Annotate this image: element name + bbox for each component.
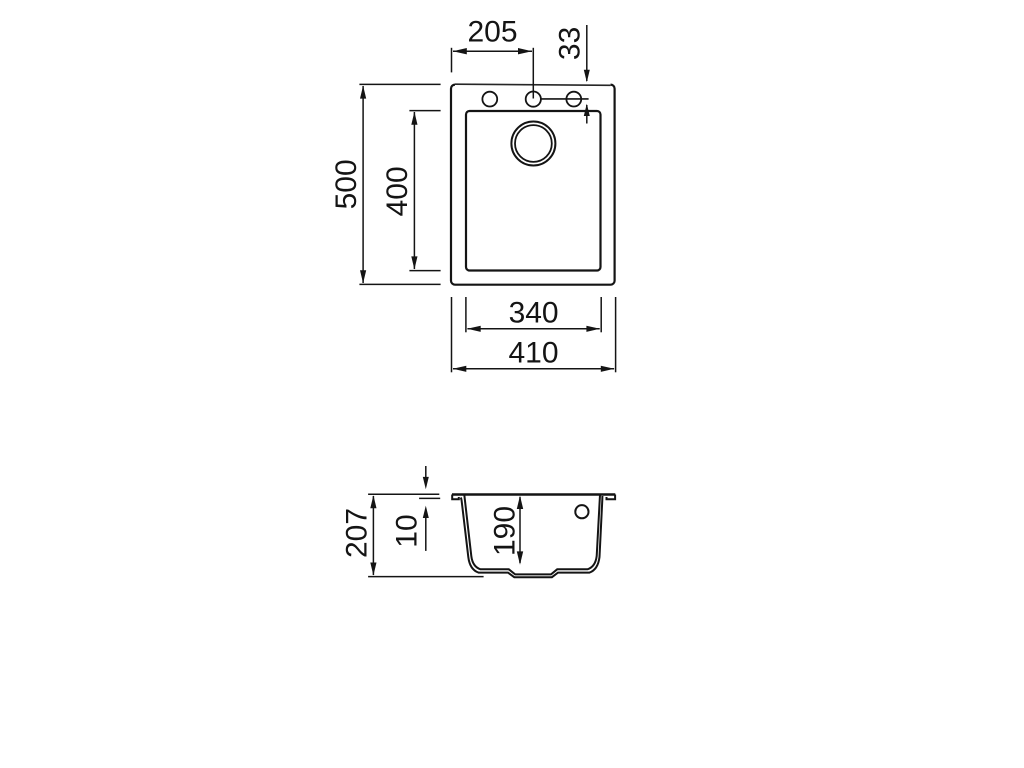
svg-text:500: 500	[330, 159, 363, 209]
svg-text:207: 207	[341, 508, 374, 558]
svg-text:410: 410	[508, 337, 558, 370]
svg-text:33: 33	[553, 27, 586, 60]
svg-text:205: 205	[467, 15, 517, 48]
svg-text:190: 190	[489, 506, 522, 556]
svg-text:340: 340	[509, 297, 559, 330]
svg-text:400: 400	[381, 166, 414, 216]
svg-text:10: 10	[391, 514, 424, 547]
